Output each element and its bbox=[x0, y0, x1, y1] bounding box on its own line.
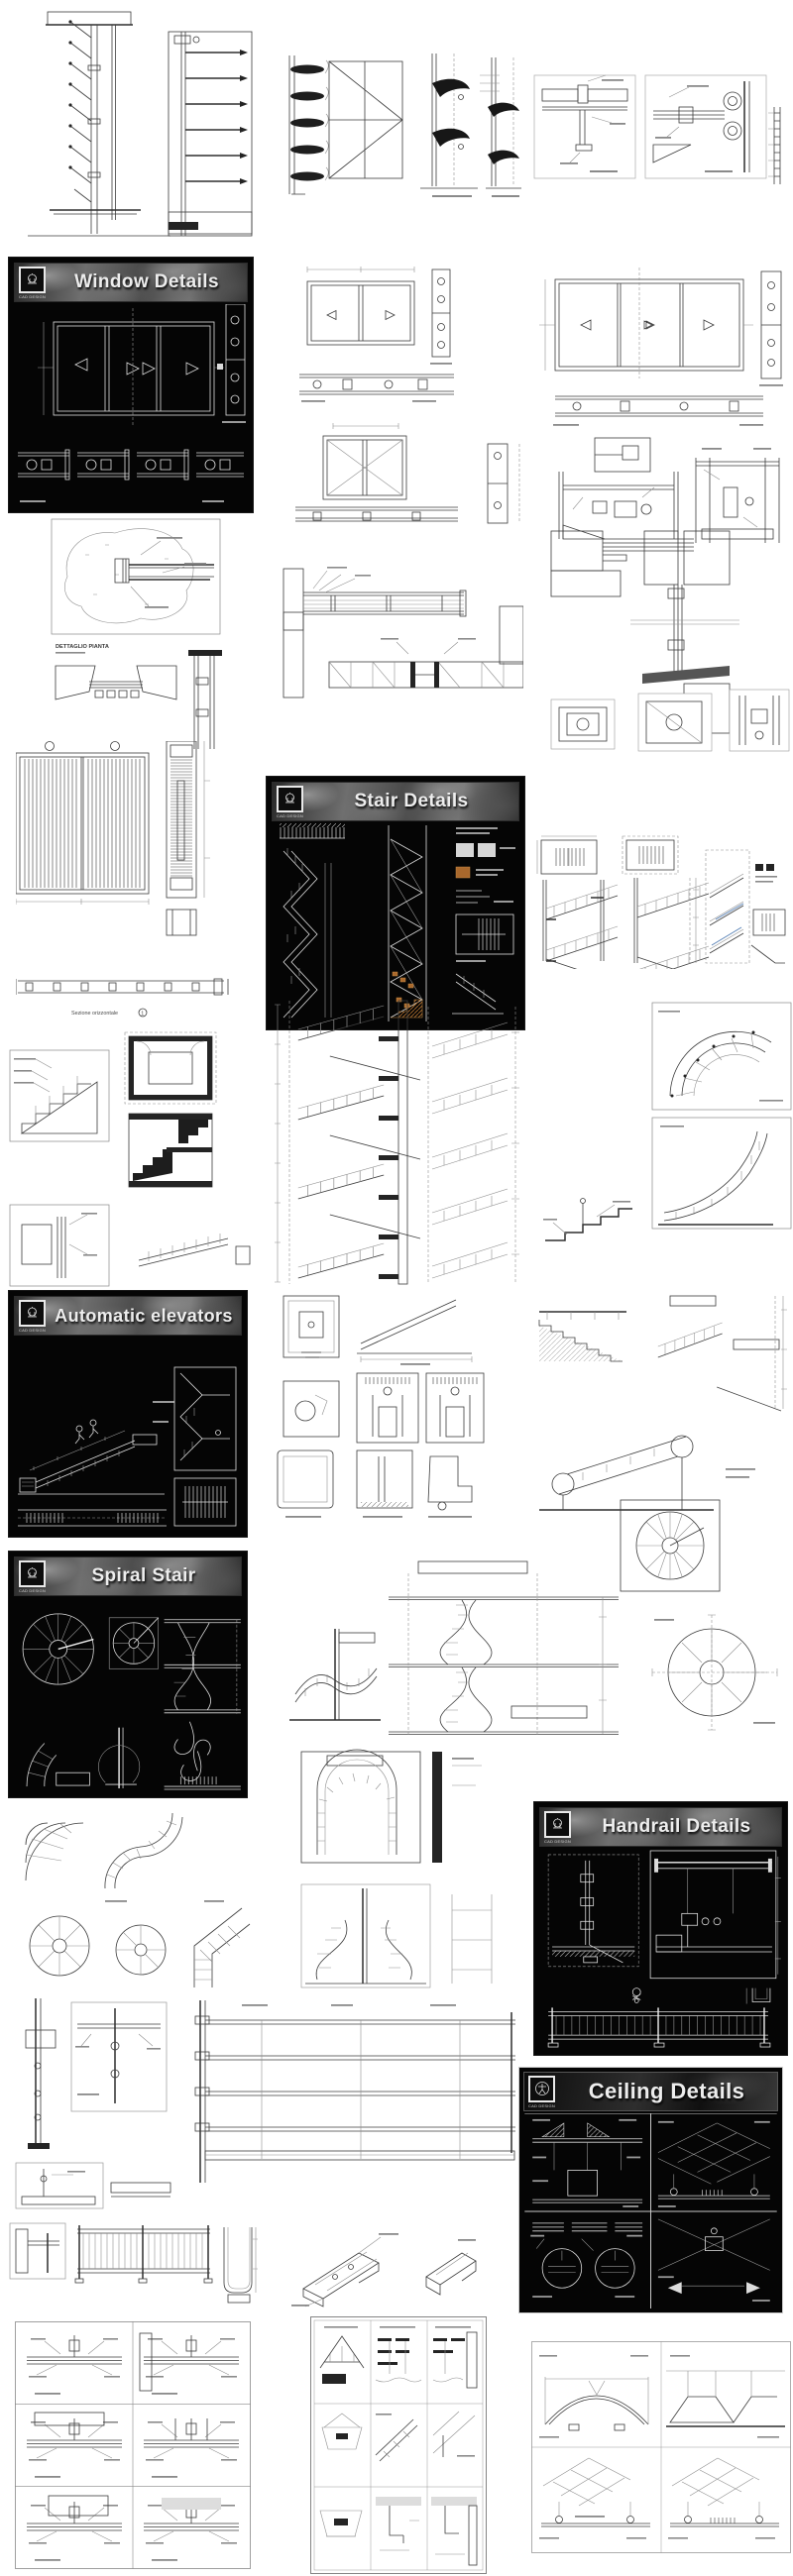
spiral-plan-box-drawing bbox=[619, 1498, 722, 1595]
logo-crest-icon bbox=[19, 267, 46, 293]
spiral-pole-section-drawing bbox=[285, 1625, 385, 1724]
sheet-ceiling-detail-grid4 bbox=[531, 2341, 791, 2553]
thumb-spiral-plan-box bbox=[619, 1498, 722, 1595]
ceiling-detail-grid4-drawing bbox=[531, 2341, 791, 2553]
panel-spiral-stair: CAD DESIGN Spiral Stair bbox=[8, 1551, 248, 1798]
thumb-curtainwall-connection-details bbox=[530, 67, 793, 190]
glazing-cloud-detail-drawing: DETTAGLIO PIANTA bbox=[46, 515, 226, 749]
louver-blade-details-drawing bbox=[266, 48, 525, 202]
thumb-stair-section-light bbox=[420, 1003, 523, 1288]
thumb-winder-plan-spiral-section bbox=[293, 1746, 523, 1993]
panel-window-body bbox=[14, 304, 248, 507]
ceiling-detail-grid9-drawing bbox=[310, 2316, 487, 2574]
stair-slab-details-drawing bbox=[0, 1030, 254, 1288]
thumb-channel-isometrics bbox=[289, 2219, 488, 2310]
panel-title-window: Window Details bbox=[51, 271, 243, 293]
panel-elevators-body bbox=[14, 1338, 242, 1532]
sliding-window-2panel-drawing bbox=[293, 260, 531, 529]
thumb-louver-blade-details bbox=[266, 48, 525, 202]
cad-design-logo: CAD DESIGN bbox=[277, 786, 303, 818]
thumb-sliding-window-3panel bbox=[535, 260, 793, 543]
panel-automatic-elevators: CAD DESIGN Automatic elevators bbox=[8, 1290, 248, 1538]
stair-details-drawing bbox=[272, 823, 519, 1024]
panel-window-details: CAD DESIGN Window Details bbox=[8, 257, 254, 513]
window-details-drawing bbox=[14, 304, 248, 507]
thumb-baluster-elevation-channel bbox=[8, 2219, 258, 2310]
logo-crest-icon bbox=[19, 1560, 46, 1587]
double-helix-elevation-drawing bbox=[389, 1557, 619, 1744]
thumb-window-jamb-sections bbox=[535, 525, 793, 753]
channel-isometrics-drawing bbox=[289, 2219, 488, 2310]
thumb-stair-slab-details bbox=[0, 1030, 254, 1288]
spiral-stair-drawing bbox=[14, 1598, 242, 1792]
panel-handrail-body bbox=[539, 1849, 782, 2050]
logo-label: CAD DESIGN bbox=[19, 294, 46, 299]
handrail-elevation-long-drawing bbox=[182, 1994, 523, 2193]
thumb-elevator-plan-details bbox=[262, 1290, 523, 1538]
caption-sezione-num: 1 bbox=[141, 1011, 144, 1017]
cad-collage-canvas: CAD DESIGN Window Details DETTAGLI bbox=[0, 0, 793, 2576]
thumb-curved-stair-plans bbox=[10, 1805, 254, 1991]
thumb-double-helix-elevation bbox=[389, 1557, 619, 1744]
cad-design-logo: CAD DESIGN bbox=[528, 2076, 555, 2108]
panel-stair-body bbox=[272, 823, 519, 1024]
thumb-spiral-pole-section bbox=[285, 1625, 385, 1724]
winder-plan-spiral-section-drawing bbox=[293, 1746, 523, 1993]
caption-dettaglio-pianta: DETTAGLIO PIANTA bbox=[56, 644, 109, 650]
handrail-details-drawing bbox=[539, 1849, 782, 2050]
thumb-curved-stair-boxes bbox=[650, 1001, 793, 1240]
thumb-railing-post-details bbox=[8, 1994, 174, 2212]
panel-spiral-header: CAD DESIGN Spiral Stair bbox=[14, 1556, 242, 1596]
louver-wall-section-drawing bbox=[20, 8, 254, 244]
thumb-wall-corner-plans bbox=[270, 555, 523, 733]
thumb-handrail-elevation-long bbox=[182, 1994, 523, 2193]
logo-label: CAD DESIGN bbox=[19, 1328, 46, 1333]
panel-ceiling-details: CAD DESIGN Ceiling Details bbox=[518, 2067, 783, 2313]
suspension-node-grid-drawing bbox=[15, 2321, 251, 2569]
panel-window-header: CAD DESIGN Window Details bbox=[14, 263, 248, 302]
panel-ceiling-header: CAD DESIGN Ceiling Details bbox=[523, 2072, 778, 2111]
panel-elevators-header: CAD DESIGN Automatic elevators bbox=[14, 1296, 242, 1336]
curtainwall-connection-drawing bbox=[530, 67, 793, 190]
caption-sezione-orizzontale: Sezione orizzontale bbox=[71, 1011, 118, 1017]
baluster-elevation-channel-drawing bbox=[8, 2219, 258, 2310]
panel-stair-header: CAD DESIGN Stair Details bbox=[272, 782, 519, 821]
logo-label: CAD DESIGN bbox=[19, 1588, 46, 1593]
railing-post-details-drawing bbox=[8, 1994, 174, 2212]
thumb-multistorey-stair-section bbox=[270, 999, 420, 1288]
panel-handrail-details: CAD DESIGN Handrail Details bbox=[533, 1801, 788, 2056]
logo-label: CAD DESIGN bbox=[528, 2103, 555, 2108]
sliding-window-3panel-drawing bbox=[535, 260, 793, 543]
sheet-ceiling-detail-grid9 bbox=[310, 2316, 487, 2574]
cad-design-logo: CAD DESIGN bbox=[19, 267, 46, 299]
logo-label: CAD DESIGN bbox=[277, 813, 303, 818]
wall-corner-plan-drawing bbox=[270, 555, 523, 733]
logo-crest-icon bbox=[19, 1300, 46, 1327]
elevator-plan-details-drawing bbox=[262, 1290, 523, 1538]
window-jamb-sections-drawing bbox=[535, 525, 793, 753]
cad-design-logo: CAD DESIGN bbox=[19, 1300, 46, 1333]
thumb-louver-wall-section bbox=[20, 8, 254, 244]
ceiling-details-drawing bbox=[523, 2113, 778, 2308]
panel-spiral-body bbox=[14, 1598, 242, 1792]
logo-label: CAD DESIGN bbox=[544, 1839, 571, 1844]
thumb-step-node-detail bbox=[539, 1195, 638, 1246]
cad-design-logo: CAD DESIGN bbox=[19, 1560, 46, 1593]
panel-title-elevators: Automatic elevators bbox=[51, 1306, 237, 1327]
cad-design-logo: CAD DESIGN bbox=[544, 1811, 571, 1844]
curved-stair-plans-drawing bbox=[10, 1805, 254, 1991]
thumb-stair-plans-sections bbox=[531, 830, 789, 969]
logo-crest-icon bbox=[544, 1811, 571, 1838]
multistorey-stair-section-drawing bbox=[270, 999, 420, 1288]
panel-handrail-header: CAD DESIGN Handrail Details bbox=[539, 1807, 782, 1847]
panel-stair-details: CAD DESIGN Stair Details bbox=[266, 776, 525, 1030]
panel-title-stair: Stair Details bbox=[308, 791, 514, 812]
stair-section-light-drawing bbox=[420, 1003, 523, 1288]
automatic-elevators-drawing bbox=[14, 1338, 242, 1532]
panel-title-handrail: Handrail Details bbox=[576, 1816, 777, 1838]
shutter-elevation-drawing: Sezione orizzontale 1 bbox=[16, 741, 254, 1028]
panel-title-ceiling: Ceiling Details bbox=[560, 2079, 773, 2104]
panel-ceiling-body bbox=[523, 2113, 778, 2308]
spiral-plan-dimensioned-drawing bbox=[650, 1613, 781, 1734]
logo-vitruvian-icon bbox=[528, 2076, 555, 2102]
step-node-detail-drawing bbox=[539, 1195, 638, 1246]
thumb-shutter-elevations: Sezione orizzontale 1 bbox=[16, 741, 254, 1028]
thumb-glazing-cloud-detail: DETTAGLIO PIANTA bbox=[46, 515, 226, 749]
thumb-sliding-window-2panel bbox=[293, 260, 531, 529]
stair-plans-sections-drawing bbox=[531, 830, 789, 969]
sheet-suspension-node-grid bbox=[15, 2321, 251, 2569]
curved-stair-boxes-drawing bbox=[650, 1001, 793, 1240]
thumb-spiral-plan-dimensioned bbox=[650, 1613, 781, 1734]
logo-crest-icon bbox=[277, 786, 303, 812]
panel-title-spiral: Spiral Stair bbox=[51, 1565, 237, 1587]
